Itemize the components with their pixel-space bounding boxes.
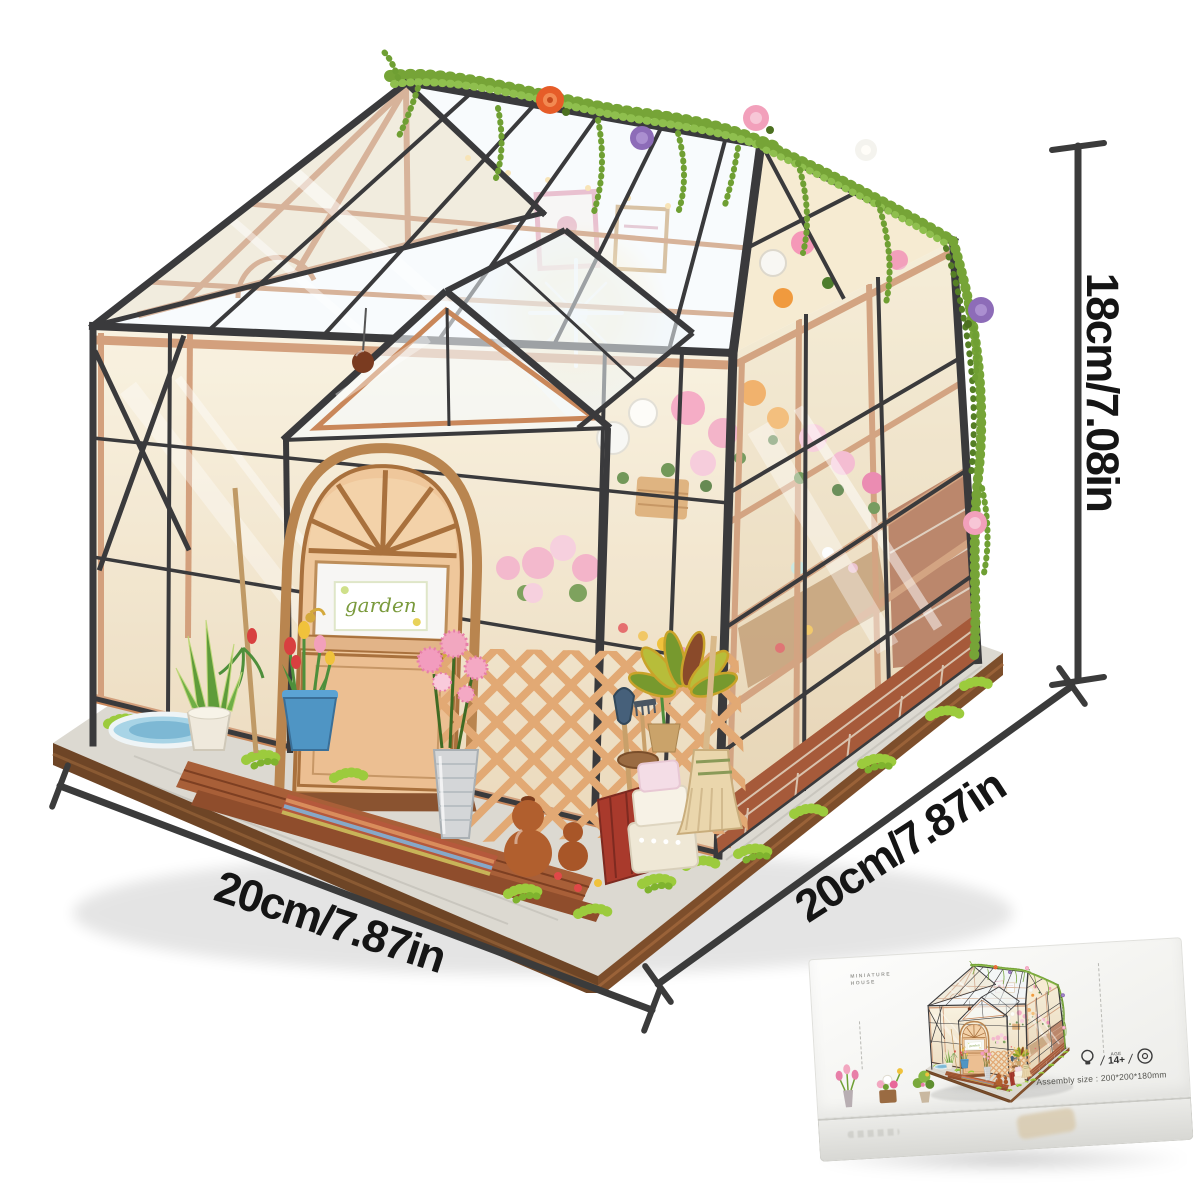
box-dotted-decor-right bbox=[1098, 963, 1104, 1053]
slash-divider: / bbox=[1128, 1052, 1134, 1065]
box-front-print-marks bbox=[847, 1128, 899, 1138]
flower-basket-illustration bbox=[876, 1068, 905, 1104]
box-brand: MINIATURE HOUSE bbox=[850, 971, 892, 987]
tulip-vase-illustration bbox=[835, 1064, 861, 1108]
light-bulb-icon bbox=[1078, 1047, 1097, 1068]
height-dimension-label: 18cm/7.08in bbox=[1076, 273, 1128, 512]
slash-divider: / bbox=[1099, 1054, 1105, 1067]
box-feature-icons: / AGE 14+ / bbox=[1078, 1044, 1154, 1068]
box-flower-illustrations bbox=[829, 1057, 944, 1112]
box-front-label-smudge bbox=[1016, 1107, 1077, 1140]
product-image: garden bbox=[0, 0, 1200, 1200]
age-badge: AGE 14+ bbox=[1108, 1051, 1126, 1066]
potted-topiary-illustration bbox=[912, 1070, 935, 1103]
box-top-face: MINIATURE HOUSE bbox=[808, 937, 1191, 1119]
age-value: 14+ bbox=[1108, 1056, 1126, 1067]
product-box: MINIATURE HOUSE bbox=[806, 948, 1200, 1198]
certification-circle-icon bbox=[1136, 1047, 1154, 1065]
box-brand-line2: HOUSE bbox=[851, 978, 892, 987]
